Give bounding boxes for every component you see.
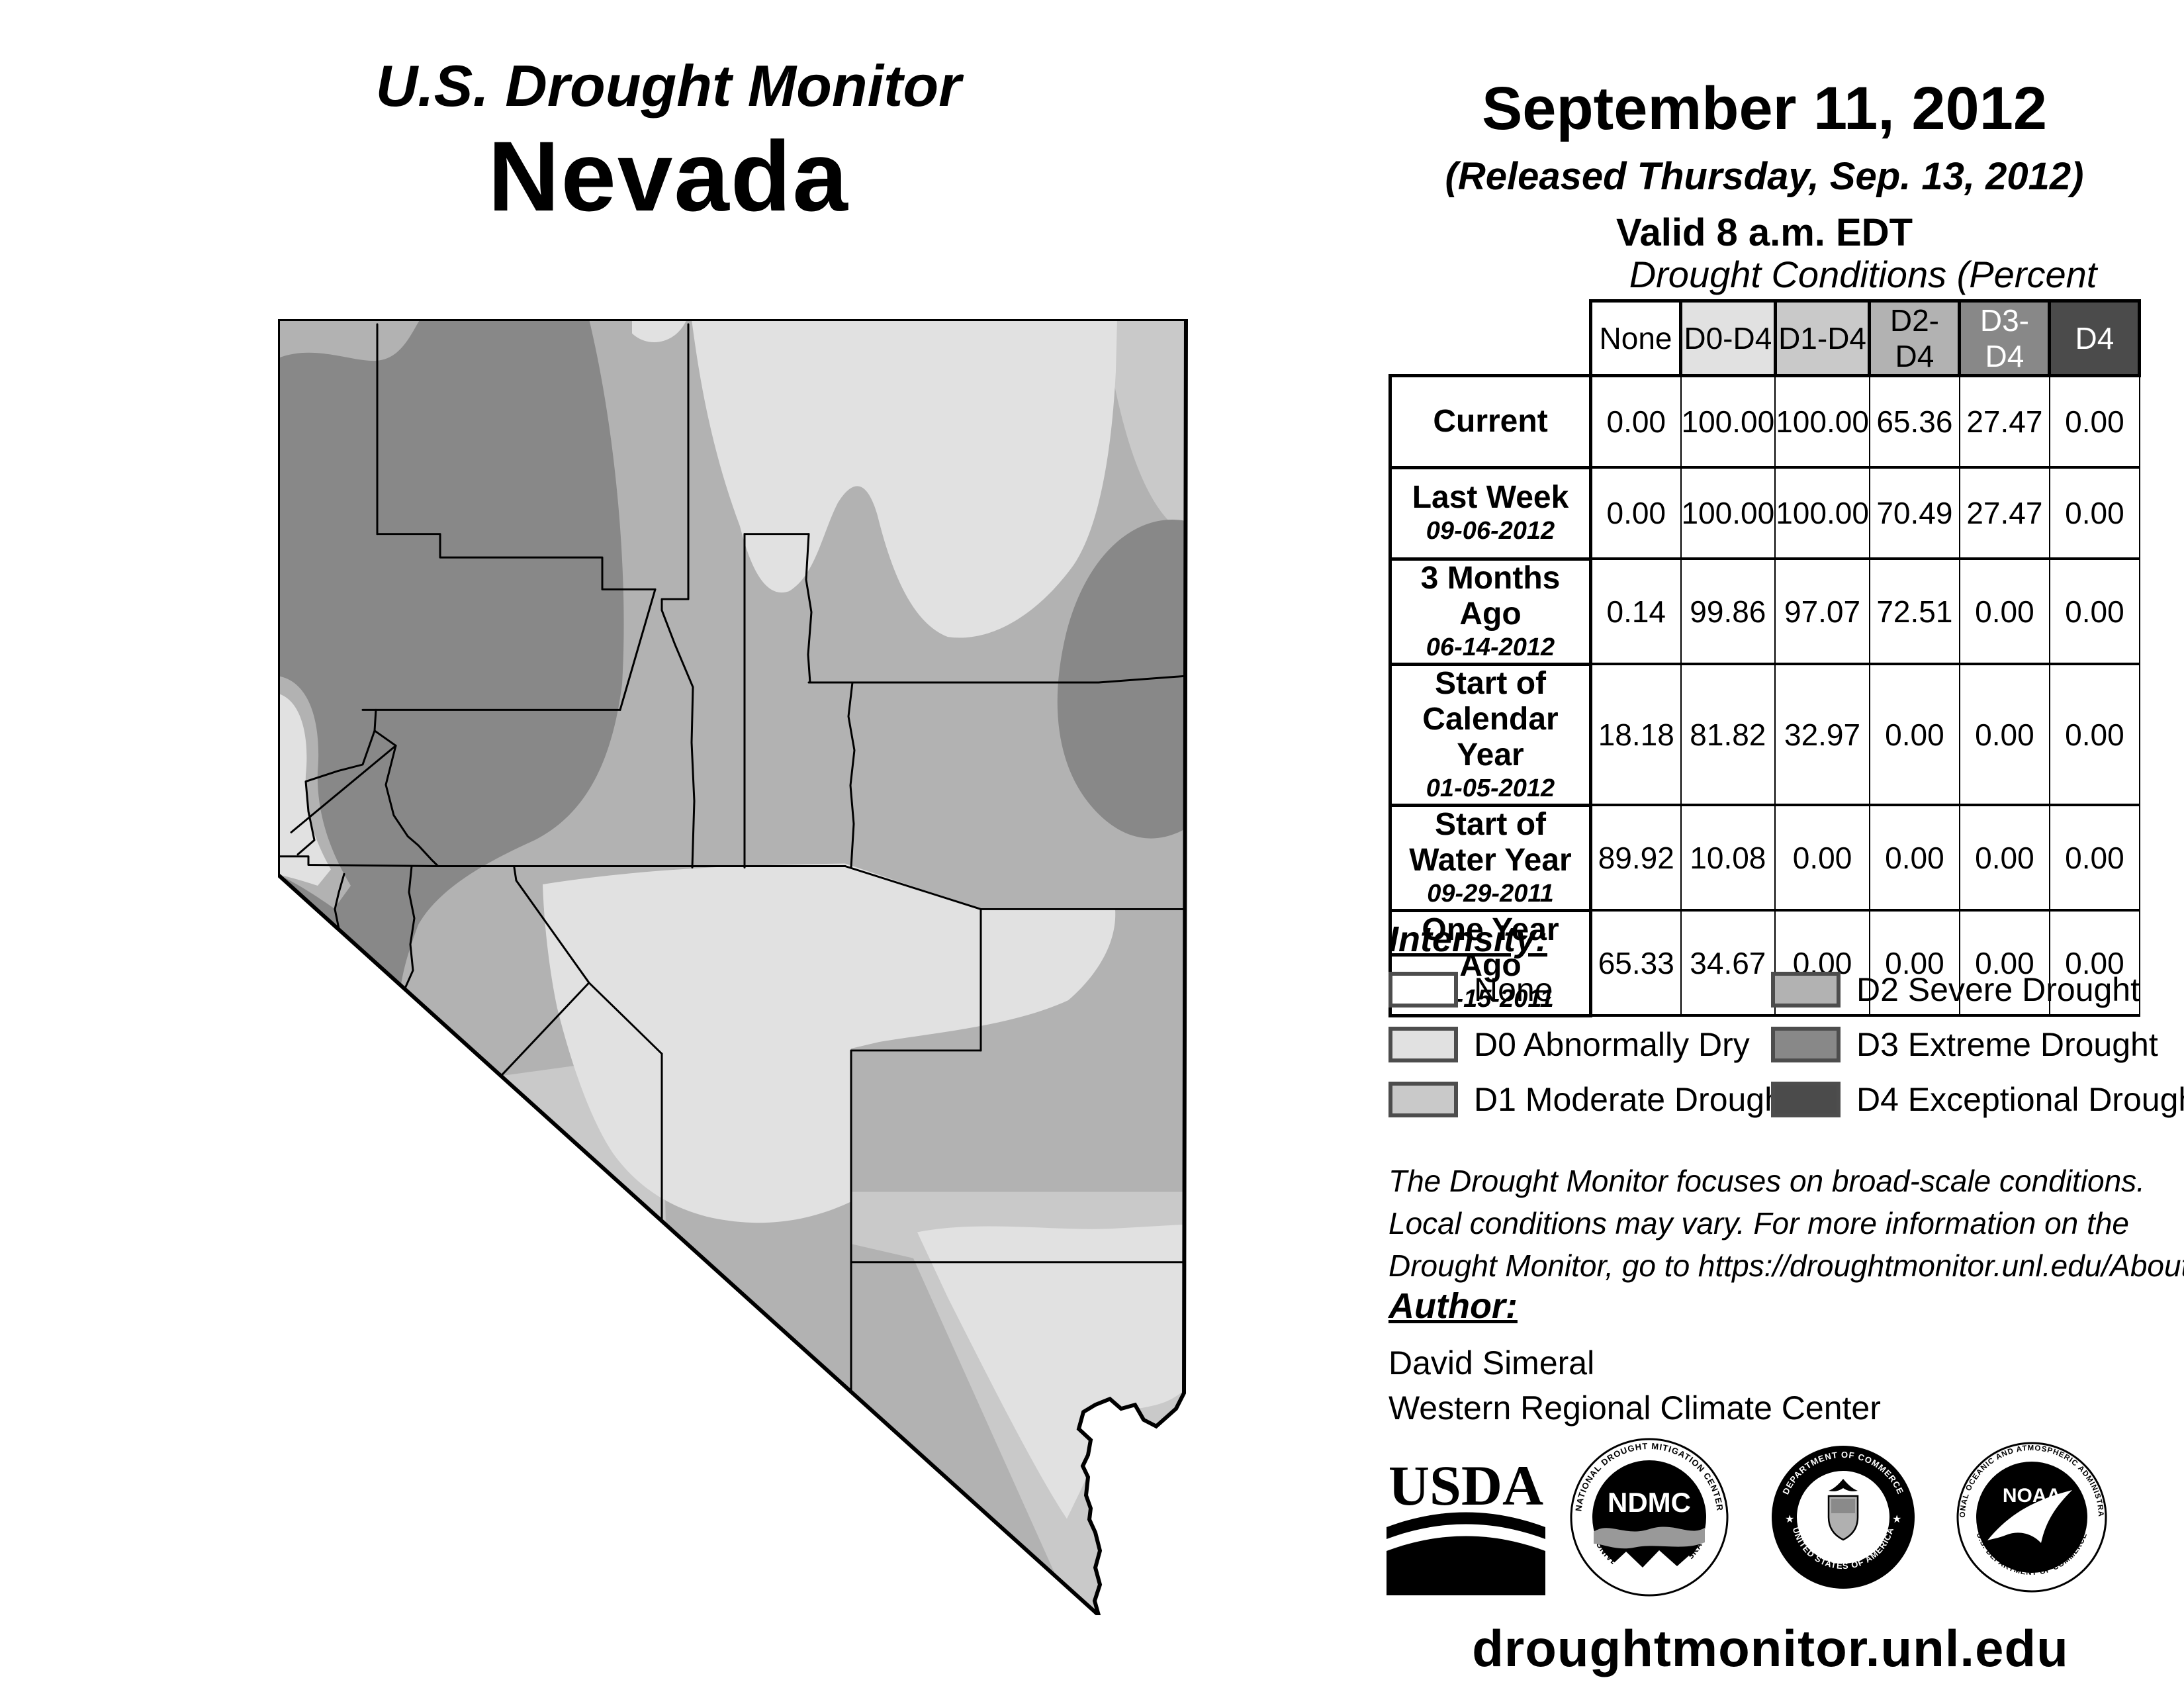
col-header-d2d4: D2-D4: [1870, 301, 1960, 376]
star-icon: ★: [1785, 1514, 1794, 1525]
col-header-d4: D4: [2050, 301, 2140, 376]
row-label-start-water-year: Start of Water Year 09-29-2011: [1390, 805, 1591, 910]
svg-text:USDA: USDA: [1388, 1454, 1543, 1517]
author-name: David Simeral: [1388, 1344, 1594, 1382]
swatch-d2: [1771, 972, 1841, 1008]
cell: 0.14: [1591, 559, 1681, 664]
author-heading: Author:: [1388, 1286, 1518, 1327]
table-row: Current 0.00 100.00 100.00 65.36 27.47 0…: [1390, 376, 2140, 468]
nevada-drought-map: [278, 319, 1191, 1615]
cell: 0.00: [1775, 805, 1870, 910]
row-label-current: Current: [1390, 376, 1591, 468]
noaa-logo: NATIONAL OCEANIC AND ATMOSPHERIC ADMINIS…: [1956, 1441, 2108, 1593]
cell: 100.00: [1681, 376, 1776, 468]
legend-item-d4: D4 Exceptional Drought: [1771, 1080, 2184, 1119]
svg-text:NDMC: NDMC: [1608, 1487, 1691, 1518]
drought-monitor-report: U.S. Drought Monitor Nevada: [0, 0, 2184, 1688]
table-corner-blank: [1390, 301, 1591, 376]
cell: 0.00: [2050, 805, 2140, 910]
cell: 100.00: [1775, 376, 1870, 468]
cell: 10.08: [1681, 805, 1776, 910]
swatch-d0: [1388, 1027, 1458, 1062]
disclaimer-line: Drought Monitor, go to https://droughtmo…: [1388, 1244, 2184, 1287]
col-header-d1d4: D1-D4: [1775, 301, 1870, 376]
legend-item-d3: D3 Extreme Drought: [1771, 1025, 2184, 1064]
usda-logo: USDA: [1387, 1453, 1545, 1595]
row-label-3-months-ago: 3 Months Ago 06-14-2012: [1390, 559, 1591, 664]
row-label-last-week: Last Week 09-06-2012: [1390, 467, 1591, 559]
star-icon: ★: [1892, 1514, 1901, 1525]
title-block: U.S. Drought Monitor Nevada: [232, 53, 1105, 229]
cell: 0.00: [2050, 664, 2140, 805]
cell: 0.00: [2050, 467, 2140, 559]
cell: 0.00: [1960, 559, 2050, 664]
table-row: Last Week 09-06-2012 0.00 100.00 100.00 …: [1390, 467, 2140, 559]
author-organization: Western Regional Climate Center: [1388, 1389, 1881, 1427]
valid-time: Valid 8 a.m. EDT: [1341, 209, 2184, 257]
table-row: Start of Water Year 09-29-2011 89.92 10.…: [1390, 805, 2140, 910]
cell: 0.00: [2050, 559, 2140, 664]
cell: 0.00: [1870, 664, 1960, 805]
legend-column-right: D2 Severe Drought D3 Extreme Drought D4 …: [1771, 970, 2184, 1119]
swatch-none: [1388, 972, 1458, 1008]
swatch-d4: [1771, 1082, 1841, 1117]
report-title: U.S. Drought Monitor: [232, 53, 1105, 119]
cell: 27.47: [1960, 376, 2050, 468]
cell: 18.18: [1591, 664, 1681, 805]
cell: 100.00: [1681, 467, 1776, 559]
cell: 72.51: [1870, 559, 1960, 664]
cell: 0.00: [1591, 467, 1681, 559]
legend-item-none: None: [1388, 970, 1792, 1009]
swatch-d3: [1771, 1027, 1841, 1062]
department-of-commerce-seal: DEPARTMENT OF COMMERCE UNITED STATES OF …: [1770, 1444, 1916, 1590]
disclaimer-line: Local conditions may vary. For more info…: [1388, 1202, 2184, 1244]
cell: 0.00: [1870, 805, 1960, 910]
legend-item-d0: D0 Abnormally Dry: [1388, 1025, 1792, 1064]
cell: 99.86: [1681, 559, 1776, 664]
cell: 0.00: [2050, 376, 2140, 468]
state-name: Nevada: [232, 123, 1105, 229]
cell: 32.97: [1775, 664, 1870, 805]
cell: 97.07: [1775, 559, 1870, 664]
table-row: Start of Calendar Year 01-05-2012 18.18 …: [1390, 664, 2140, 805]
disclaimer-line: The Drought Monitor focuses on broad-sca…: [1388, 1160, 2184, 1202]
table-header-row: None D0-D4 D1-D4 D2-D4 D3-D4 D4: [1390, 301, 2140, 376]
release-date: (Released Thursday, Sep. 13, 2012): [1341, 152, 2184, 201]
date-block: September 11, 2012 (Released Thursday, S…: [1341, 74, 2184, 257]
row-label-start-calendar-year: Start of Calendar Year 01-05-2012: [1390, 664, 1591, 805]
drought-conditions-table: None D0-D4 D1-D4 D2-D4 D3-D4 D4 Current …: [1388, 299, 2141, 1017]
map-date: September 11, 2012: [1341, 74, 2184, 143]
ndmc-logo: NATIONAL DROUGHT MITIGATION CENTER UNIVE…: [1570, 1438, 1729, 1597]
swatch-d1: [1388, 1082, 1458, 1117]
legend-item-d2: D2 Severe Drought: [1771, 970, 2184, 1009]
cell: 27.47: [1960, 467, 2050, 559]
col-header-none: None: [1591, 301, 1681, 376]
col-header-d3d4: D3-D4: [1960, 301, 2050, 376]
intensity-heading: Intensity:: [1388, 919, 1547, 960]
footer-url: droughtmonitor.unl.edu: [1436, 1618, 2105, 1679]
cell: 70.49: [1870, 467, 1960, 559]
legend-column-left: None D0 Abnormally Dry D1 Moderate Droug…: [1388, 970, 1792, 1119]
col-header-d0d4: D0-D4: [1681, 301, 1776, 376]
table-row: 3 Months Ago 06-14-2012 0.14 99.86 97.07…: [1390, 559, 2140, 664]
cell: 81.82: [1681, 664, 1776, 805]
cell: 89.92: [1591, 805, 1681, 910]
cell: 0.00: [1960, 664, 2050, 805]
cell: 0.00: [1960, 805, 2050, 910]
cell: 0.00: [1591, 376, 1681, 468]
cell: 100.00: [1775, 467, 1870, 559]
disclaimer: The Drought Monitor focuses on broad-sca…: [1388, 1160, 2184, 1287]
cell: 65.36: [1870, 376, 1960, 468]
legend-item-d1: D1 Moderate Drought: [1388, 1080, 1792, 1119]
